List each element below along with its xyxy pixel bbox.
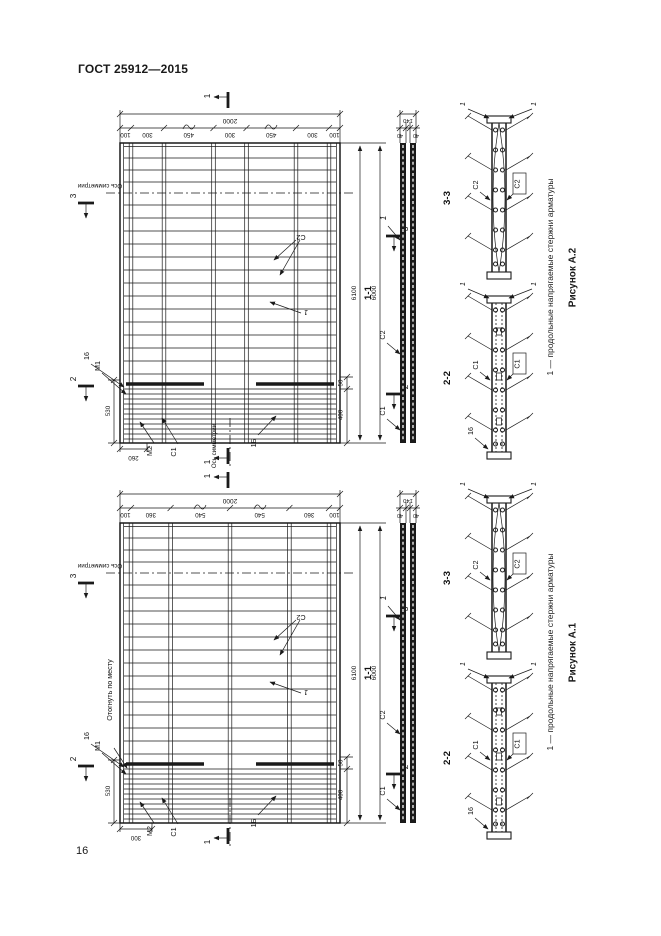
flag-3-left: 3 — [70, 193, 78, 198]
dim-40: 40 — [397, 512, 403, 518]
mark-m2: М2 — [145, 446, 154, 456]
dim-400: 400 — [338, 409, 345, 420]
dim-bottom: 300 — [130, 834, 141, 841]
plan-dimensions-top: 2000 100 360 540 540 360 100 — [117, 490, 343, 523]
axis-label-h: Ось симметрии — [77, 562, 122, 569]
sec22-mark-1-left: 1 — [458, 282, 467, 286]
dim-bar-length: 6100 — [351, 665, 358, 680]
sec22-mark-right-boxed: С1 — [513, 359, 522, 368]
dim-chain-seg: 360 — [303, 511, 314, 518]
section-1-1-title: 1-1 — [363, 285, 374, 300]
plan-grid-horizontal — [124, 527, 336, 820]
sec33-mark-right-boxed: С2 — [513, 559, 522, 568]
mark-pos1: 1 — [304, 308, 308, 317]
sec22-mark-16: 16 — [466, 427, 475, 435]
dim-50: 50 — [338, 759, 345, 766]
dim-chain-seg: 540 — [195, 511, 206, 518]
dim-bottom: 260 — [128, 454, 139, 461]
sec22-mark-1-right: 1 — [529, 662, 538, 666]
section-2-2: 2-2 1 1 С1 С1 — [442, 662, 538, 839]
mark-1b: 1Б — [249, 818, 258, 827]
section-flags: 1 1 3 2 3 2 — [70, 92, 410, 464]
mark-m1: М1 — [93, 741, 102, 751]
plan-grid-vertical — [124, 523, 337, 823]
sec22-mark-left: С1 — [471, 360, 480, 369]
figure-a1-note: 1 — продольные напрягаемые стержни армат… — [545, 527, 557, 777]
dim-chain-seg: 450 — [265, 131, 276, 138]
section-flags: 1 1 3 2 3 2 — [70, 472, 410, 844]
dim-40: 40 — [413, 132, 419, 138]
dim-530: 530 — [105, 785, 112, 796]
sec11-mark-1: 1 — [379, 216, 388, 221]
sec22-mark-1-left: 1 — [458, 662, 467, 666]
flag-1-bottom: 1 — [203, 459, 212, 464]
figure-a2-caption: Рисунок А.2 — [568, 243, 581, 313]
section-3-3-title: 3-3 — [442, 571, 453, 585]
figure-a1-drawing: Ось симметрии Отогнуть по месту 2000 100… — [70, 468, 540, 853]
sec22-mark-1-right: 1 — [529, 282, 538, 286]
dim-chain-seg: 540 — [254, 511, 265, 518]
dim-total-width: 2000 — [222, 497, 237, 504]
dim-chain-seg: 300 — [224, 131, 235, 138]
mark-16: 16 — [82, 352, 91, 360]
sec33-mark-1-right: 1 — [529, 102, 538, 106]
dim-50: 50 — [338, 379, 345, 386]
mark-c1: С1 — [169, 447, 178, 456]
axis-label-v: Ось симметрии — [211, 423, 218, 468]
dim-40: 40 — [397, 132, 403, 138]
mark-m2: М2 — [145, 826, 154, 836]
sec22-mark-left: С1 — [471, 740, 480, 749]
plan-view: Ось симметрии Отогнуть по месту — [77, 523, 354, 848]
flag-2-left: 2 — [70, 756, 78, 761]
plan-dimensions-top: 2000 100 300 450 300 450 300 100 — [117, 110, 343, 143]
mark-16: 16 — [82, 732, 91, 740]
dim-chain-seg: 300 — [142, 131, 153, 138]
sec11-mark-c1: С1 — [378, 406, 387, 415]
sec22-mark-16: 16 — [466, 807, 475, 815]
sec22-mark-right-boxed: С1 — [513, 739, 522, 748]
document-page: ГОСТ 25912—2015 16 Ось симметрии Ось сим… — [0, 0, 661, 936]
plan-view: Ось симметрии Ось симметрии — [77, 143, 354, 468]
dim-40: 40 — [413, 512, 419, 518]
flag-2-left: 2 — [70, 376, 78, 381]
sec11-mark-1: 1 — [379, 596, 388, 601]
sec33-mark-1-left: 1 — [458, 102, 467, 106]
mark-c1: С1 — [169, 827, 178, 836]
section-2-2-title: 2-2 — [442, 371, 453, 385]
section-2-2-title: 2-2 — [442, 751, 453, 765]
dim-chain-seg: 450 — [183, 131, 194, 138]
dim-chain-seg: 100 — [329, 131, 340, 138]
dim-total-width: 2000 — [222, 117, 237, 124]
flag-3-left: 3 — [70, 573, 78, 578]
dim-400: 400 — [338, 789, 345, 800]
plan-grid-vertical — [124, 143, 337, 443]
plan-dimensions-bottom: 530 300 400 50 — [105, 754, 353, 841]
dim-530: 530 — [105, 405, 112, 416]
mark-m1: М1 — [93, 361, 102, 371]
flag-1-bottom: 1 — [203, 839, 212, 844]
dim-chain-seg: 300 — [307, 131, 318, 138]
dim-bar-length: 6100 — [351, 285, 358, 300]
sec11-mark-c2: С2 — [378, 330, 387, 339]
dim-chain-seg: 360 — [145, 511, 156, 518]
dim-140: 140 — [403, 117, 413, 123]
mark-1b: 1Б — [249, 438, 258, 447]
figure-a2-drawing: Ось симметрии Ось симметрии 2000 100 300… — [70, 88, 540, 473]
sec33-mark-left: С2 — [471, 560, 480, 569]
plan-dimensions-bottom: 530 260 400 50 — [105, 374, 353, 461]
section-1-1-title: 1-1 — [363, 665, 374, 680]
doc-header: ГОСТ 25912—2015 — [78, 62, 188, 76]
plan-marks: С2 1 16 М1 М2 С1 1Б — [82, 613, 308, 837]
flag-1-top: 1 — [203, 93, 212, 98]
mark-pos1: 1 — [304, 688, 308, 697]
section-3-3: 3-3 1 1 С2 С2 — [442, 102, 538, 279]
plan-grid-horizontal — [124, 147, 336, 440]
sec33-mark-right-boxed: С2 — [513, 179, 522, 188]
dim-chain-seg: 100 — [120, 511, 131, 518]
sec33-mark-1-left: 1 — [458, 482, 467, 486]
sec11-mark-c2: С2 — [378, 710, 387, 719]
plan-marks: С2 1 16 М1 М2 С1 1Б — [82, 233, 308, 457]
axis-label-h: Ось симметрии — [77, 182, 122, 189]
mark-c2: С2 — [296, 233, 305, 242]
mark-c2: С2 — [296, 613, 305, 622]
section-3-3: 3-3 1 1 С2 С2 — [442, 482, 538, 659]
figure-a2-note: 1 — продольные напрягаемые стержни армат… — [545, 152, 557, 402]
flag-1-top: 1 — [203, 473, 212, 478]
section-3-3-title: 3-3 — [442, 191, 453, 205]
sec33-mark-1-right: 1 — [529, 482, 538, 486]
bend-note: Отогнуть по месту — [105, 659, 114, 721]
dim-chain-seg: 100 — [329, 511, 340, 518]
sec33-mark-left: С2 — [471, 180, 480, 189]
section-2-2: 2-2 1 1 С1 С1 — [442, 282, 538, 459]
sec11-mark-c1: С1 — [378, 786, 387, 795]
dim-chain-seg: 100 — [120, 131, 131, 138]
figure-a1-caption: Рисунок А.1 — [568, 618, 581, 688]
dim-140: 140 — [403, 497, 413, 503]
